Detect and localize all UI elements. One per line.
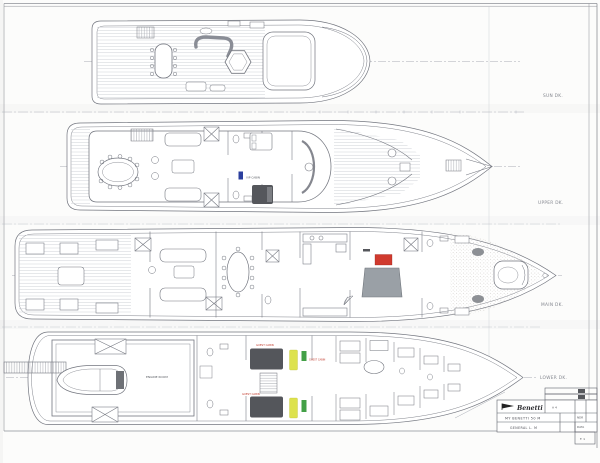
page-note: F. 1 — [580, 437, 585, 441]
pantry-box — [404, 238, 418, 251]
field-2: DATA — [577, 425, 584, 429]
guest-cabin-label-stbd: GUEST CABIN — [242, 392, 260, 396]
sun-deck-skylight — [263, 32, 315, 90]
sheet-code: A 4 — [552, 406, 557, 410]
guest-bed-dark-port — [250, 349, 283, 370]
upper-deck-plan — [60, 121, 522, 213]
aft-deck-planking — [71, 127, 90, 206]
coffee-table — [172, 160, 194, 173]
drawing-line: GENERAL L. M — [510, 426, 537, 430]
deck-label-lower: LOWER DK. — [540, 375, 567, 381]
saloon-sofa — [160, 288, 206, 301]
passerelle — [4, 362, 66, 373]
deck-label-sun: SUN DK. — [543, 93, 563, 99]
sun-deck-plan — [84, 20, 520, 104]
helm-seat — [305, 163, 313, 171]
engine-room-label: ENGINE ROOM — [146, 375, 168, 379]
saloon-sofa — [160, 249, 206, 262]
green-highlight-stbd — [302, 400, 307, 412]
ga-drawing-svg: SUN DK. — [0, 0, 600, 463]
windlass — [388, 177, 396, 185]
ga-drawing-sheet: SUN DK. — [0, 0, 600, 463]
green-highlight-port — [302, 351, 307, 361]
windlass — [388, 149, 396, 157]
red-highlight — [375, 255, 392, 266]
saloon-table — [174, 266, 194, 278]
yellow-highlight-stbd — [290, 398, 298, 418]
upper-deck-stairs — [131, 129, 153, 141]
owner-chair-dark — [472, 248, 484, 256]
bow-hatch — [446, 160, 461, 171]
crew-mess-table — [364, 361, 384, 374]
deck-label-main: MAIN DK. — [541, 302, 563, 308]
galley-range-gray — [362, 268, 402, 297]
owner-chair-dark — [472, 295, 484, 303]
guest-cabin-label-small: GUEST CABIN — [309, 359, 326, 362]
rev-mark — [578, 389, 585, 393]
project-line: MY BENETTI 50 M — [505, 417, 541, 421]
guest-bed-dark-stbd — [250, 397, 283, 418]
tender-boat — [57, 366, 127, 395]
bar-counter — [155, 44, 172, 78]
field-1: NDR — [577, 416, 583, 420]
blue-highlight — [239, 172, 244, 180]
central-stairs — [260, 373, 277, 393]
sofa — [165, 188, 201, 201]
sun-deck-stairs — [137, 27, 154, 38]
title-block: Benetti A 4 MY BENETTI 50 M GENERAL L. M… — [497, 388, 597, 444]
vip-cabin-label: VIP CABIN — [246, 176, 260, 180]
main-deck-plan — [12, 228, 562, 322]
benetti-logo-text: Benetti — [516, 405, 543, 412]
yellow-highlight-port — [290, 350, 298, 370]
guest-cabin-label-port: GUEST CABIN — [256, 343, 274, 347]
rev-mark — [578, 395, 585, 399]
sofa — [165, 133, 201, 146]
cabin-bed — [250, 133, 272, 150]
deck-label-upper: UPPER DK. — [538, 200, 564, 206]
